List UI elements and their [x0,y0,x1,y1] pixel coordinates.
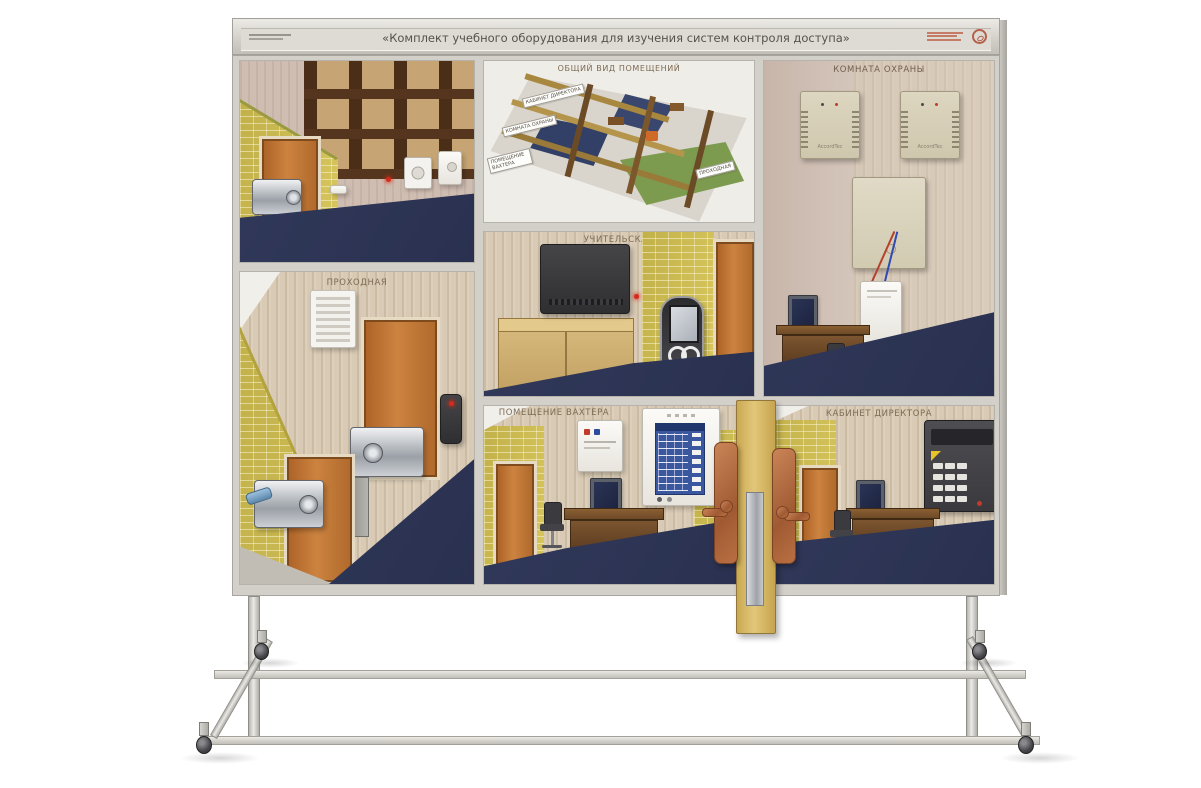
section-label-janitor: ПОМЕЩЕНИЕ ВАХТЕРА [483,408,654,418]
vent-grille [310,290,356,348]
section-label-security: КОМНАТА ОХРАНЫ [764,65,994,75]
caster-rear-left [254,630,269,660]
desk-top [776,325,870,335]
board-header: «Комплект учебного оборудования для изуч… [232,18,1000,55]
psu-small [577,420,623,472]
door-faceplate [746,492,764,606]
door-handle-right-boss [776,506,789,519]
psu-brand: AccordTec [801,144,859,150]
demo-door [714,400,798,634]
section-label-overview: ОБЩИЙ ВИД ПОМЕЩЕНИЙ [484,64,754,73]
keypad-terminal [924,420,995,512]
model-plate [249,32,307,44]
board-title: «Комплект учебного оборудования для изуч… [233,31,999,45]
shadow [240,658,300,668]
training-stand-photo: «Комплект учебного оборудования для изуч… [0,0,1201,788]
alarm-panel [642,408,720,506]
monitor [788,295,818,329]
section-label-entrance: ПРОХОДНАЯ [240,278,474,288]
caster-rear-right [972,630,987,660]
section-teachers: УЧИТЕЛЬСКАЯ [483,231,755,397]
plan-desk [608,117,624,125]
shadow [958,658,1018,668]
stand-mid-crossbar [214,670,1026,679]
cert-logo-icon [972,29,987,44]
power-socket [404,157,432,189]
electric-lock [252,179,302,215]
psu-brand: AccordTec [901,144,959,150]
shadow [1000,752,1080,764]
desk-top [564,508,664,520]
caster-front-left [196,722,212,754]
magnetic-contact [330,185,347,194]
alarm-led [634,294,639,299]
monitor [590,478,622,512]
cert-label [927,30,965,44]
section-overview: ОБЩИЙ ВИД ПОМЕЩЕНИЙ КАБИНЕТ ДИРЕКТ [483,60,755,223]
control-unit [540,244,630,314]
shadow [180,752,260,764]
electric-lock-upper [350,427,424,477]
equipment-panel: СКЛАД ПРОХОДНАЯ [232,55,1000,596]
floor-plan: КАБИНЕТ ДИРЕКТОРА КОМНАТА ОХРАНЫ ПОМЕЩЕН… [488,73,752,223]
door-handle-left-boss [720,500,733,513]
section-entrance: ПРОХОДНАЯ [239,271,475,585]
psu-box-2: AccordTec [900,91,960,159]
plan-chair [646,131,658,141]
section-security: КОМНАТА ОХРАНЫ AccordTec AccordTec [763,60,995,397]
desk-top [846,508,940,519]
card-reader [440,394,462,444]
call-unit [438,151,462,185]
section-label-director: КАБИНЕТ ДИРЕКТОРА [764,409,994,419]
section-storage: СКЛАД [239,60,475,263]
control-cabinet [852,177,926,269]
stand-bottom-crossbar [200,736,1040,745]
caster-front-right [1018,722,1034,754]
psu-box-1: AccordTec [800,91,860,159]
frame-side-profile [1000,20,1007,595]
alarm-led [386,177,391,182]
plan-desk-2 [670,103,684,111]
